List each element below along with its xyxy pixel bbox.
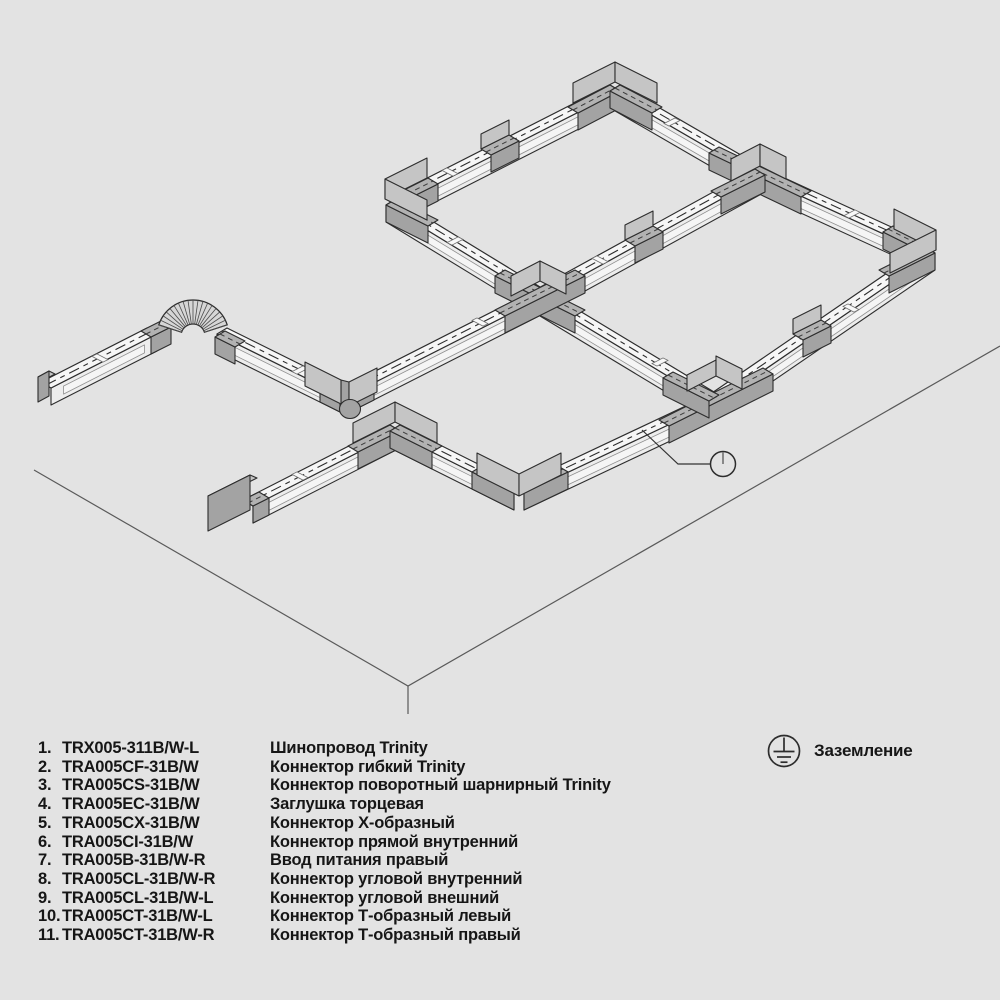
legend-item-number: 4.: [38, 795, 51, 813]
legend-item: 9.TRA005CL-31B/W-LКоннектор угловой внеш…: [38, 889, 51, 908]
legend-item: 10.TRA005CT-31B/W-LКоннектор Т-образный …: [38, 907, 60, 926]
legend-item: 8.TRA005CL-31B/W-RКоннектор угловой внут…: [38, 870, 51, 889]
legend-item-code: TRA005CF-31B/W: [62, 758, 199, 777]
legend-item-code: TRX005-311B/W-L: [62, 739, 199, 758]
legend-item-code: TRA005CL-31B/W-R: [62, 870, 215, 889]
legend-item-description: Коннектор поворотный шарнирный Trinity: [270, 776, 611, 795]
t-connector-right: [709, 144, 811, 214]
legend-item-code: TRA005CL-31B/W-L: [62, 889, 213, 908]
ground-icon: [766, 733, 802, 769]
x-connector: [495, 261, 585, 333]
legend-item-number: 10.: [38, 907, 60, 925]
legend-item-number: 8.: [38, 870, 51, 888]
legend-item-number: 1.: [38, 739, 51, 757]
legend-item-description: Шинопровод Trinity: [270, 739, 428, 758]
corner-connector-outer-bottom: [472, 453, 568, 510]
legend-item-number: 7.: [38, 851, 51, 869]
swivel-connector: [305, 362, 377, 419]
legend-item-code: TRA005CT-31B/W-L: [62, 907, 213, 926]
legend-item-code: TRA005CI-31B/W: [62, 833, 193, 852]
legend-item-number: 3.: [38, 776, 51, 794]
legend-item-number: 6.: [38, 833, 51, 851]
legend-item: 3.TRA005CS-31B/WКоннектор поворотный шар…: [38, 776, 51, 795]
legend-item-description: Коннектор Т-образный правый: [270, 926, 521, 945]
floor-outline: [34, 346, 1000, 714]
legend-item-description: Коннектор прямой внутренний: [270, 833, 518, 852]
legend-item-code: TRA005EC-31B/W: [62, 795, 199, 814]
power-feed: [208, 475, 269, 531]
legend-item-description: Заглушка торцевая: [270, 795, 424, 814]
legend-item-code: TRA005CT-31B/W-R: [62, 926, 214, 945]
legend-item-description: Коннектор гибкий Trinity: [270, 758, 465, 777]
legend-item-code: TRA005B-31B/W-R: [62, 851, 205, 870]
legend-item-number: 2.: [38, 758, 51, 776]
legend-item-description: Коннектор угловой внешний: [270, 889, 499, 908]
legend-item: 5.TRA005CX-31B/WКоннектор Х-образный: [38, 814, 51, 833]
legend-item: 6.TRA005CI-31B/WКоннектор прямой внутрен…: [38, 833, 51, 852]
schematic-page: 1.TRX005-311B/W-LШинопровод Trinity2.TRA…: [0, 0, 1000, 1000]
legend-item-number: 9.: [38, 889, 51, 907]
legend-item-number: 5.: [38, 814, 51, 832]
legend-item: 4.TRA005EC-31B/WЗаглушка торцевая: [38, 795, 51, 814]
legend-item: 1.TRX005-311B/W-LШинопровод Trinity: [38, 739, 51, 758]
legend-item: 7.TRA005B-31B/W-RВвод питания правый: [38, 851, 51, 870]
isometric-track-diagram: [0, 0, 1000, 732]
legend-item-description: Коннектор Х-образный: [270, 814, 455, 833]
legend-item-description: Коннектор Т-образный левый: [270, 907, 511, 926]
legend-item-description: Коннектор угловой внутренний: [270, 870, 522, 889]
legend-item-number: 11.: [38, 926, 59, 944]
ground-legend: Заземление: [766, 733, 913, 769]
corner-connector-outer-top: [568, 62, 662, 130]
ground-label: Заземление: [814, 741, 913, 761]
legend-item-code: TRA005CX-31B/W: [62, 814, 199, 833]
legend-item-description: Ввод питания правый: [270, 851, 448, 870]
corner-connector-inner: [348, 402, 442, 469]
legend-item: 2.TRA005CF-31B/WКоннектор гибкий Trinity: [38, 758, 51, 777]
legend-item-code: TRA005CS-31B/W: [62, 776, 199, 795]
legend-item: 11.TRA005CT-31B/W-RКоннектор Т-образный …: [38, 926, 59, 945]
